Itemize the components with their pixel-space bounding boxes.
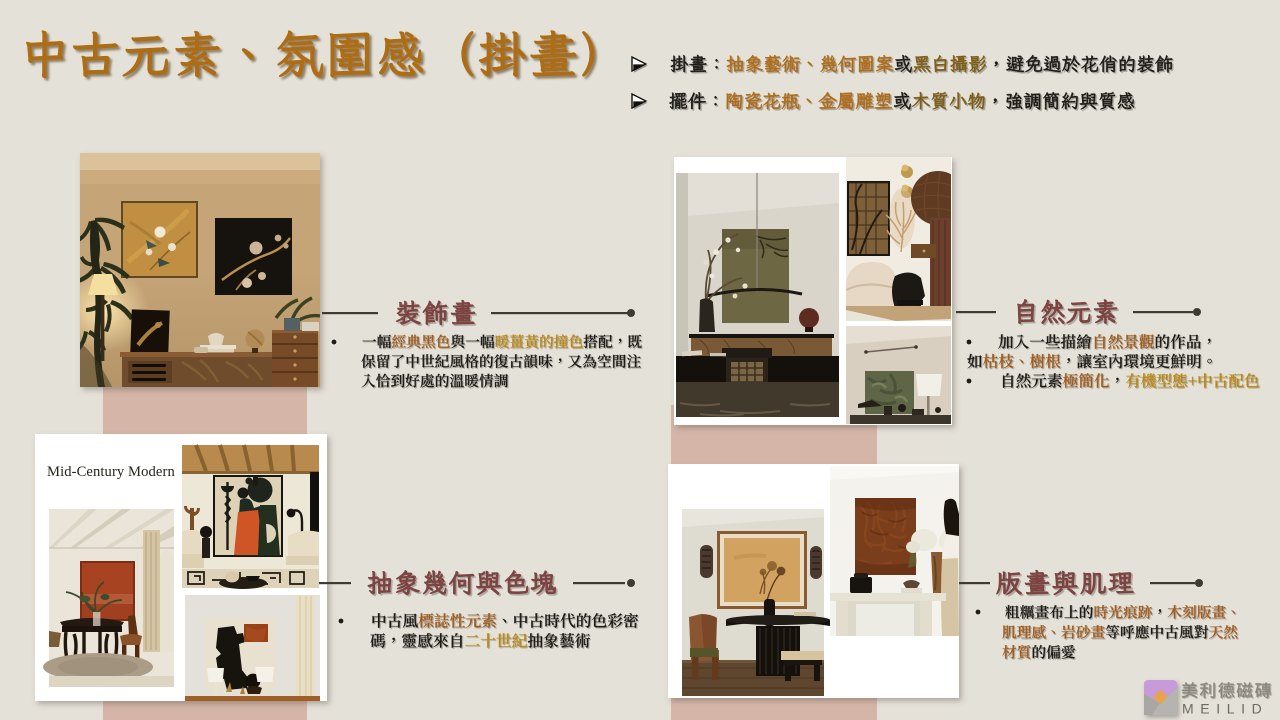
svg-text:Mid-Century Modern: Mid-Century Modern: [47, 464, 175, 480]
svg-text:MEILID: MEILID: [1182, 701, 1268, 717]
